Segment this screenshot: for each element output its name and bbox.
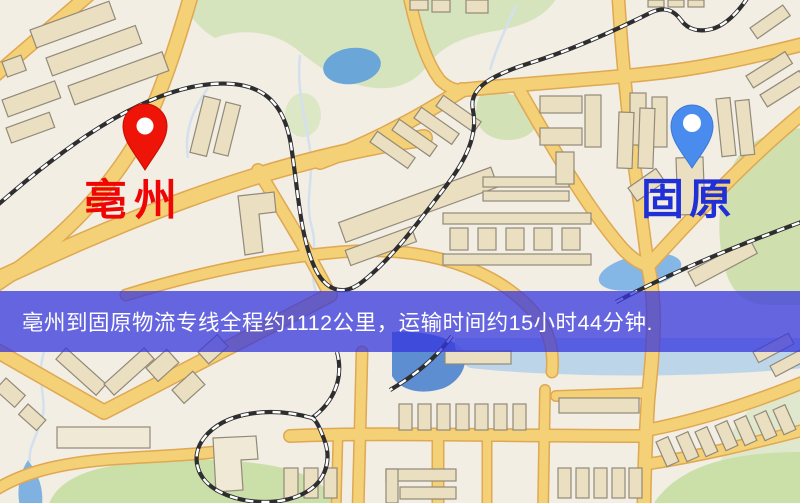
- route-banner: 亳州到固原物流专线全程约1112公里，运输时间约15小时44分钟.: [0, 291, 800, 352]
- route-banner-text: 亳州到固原物流专线全程约1112公里，运输时间约15小时44分钟.: [0, 306, 653, 337]
- destination-pin-hole: [683, 114, 701, 132]
- destination-label: 固原: [641, 179, 737, 222]
- origin-label: 亳州: [84, 180, 184, 223]
- origin-pin-hole: [137, 118, 154, 135]
- route-map: 亳州 固原 亳州到固原物流专线全程约1112公里，运输时间约15小时44分钟.: [0, 0, 800, 503]
- map-canvas: [0, 0, 800, 503]
